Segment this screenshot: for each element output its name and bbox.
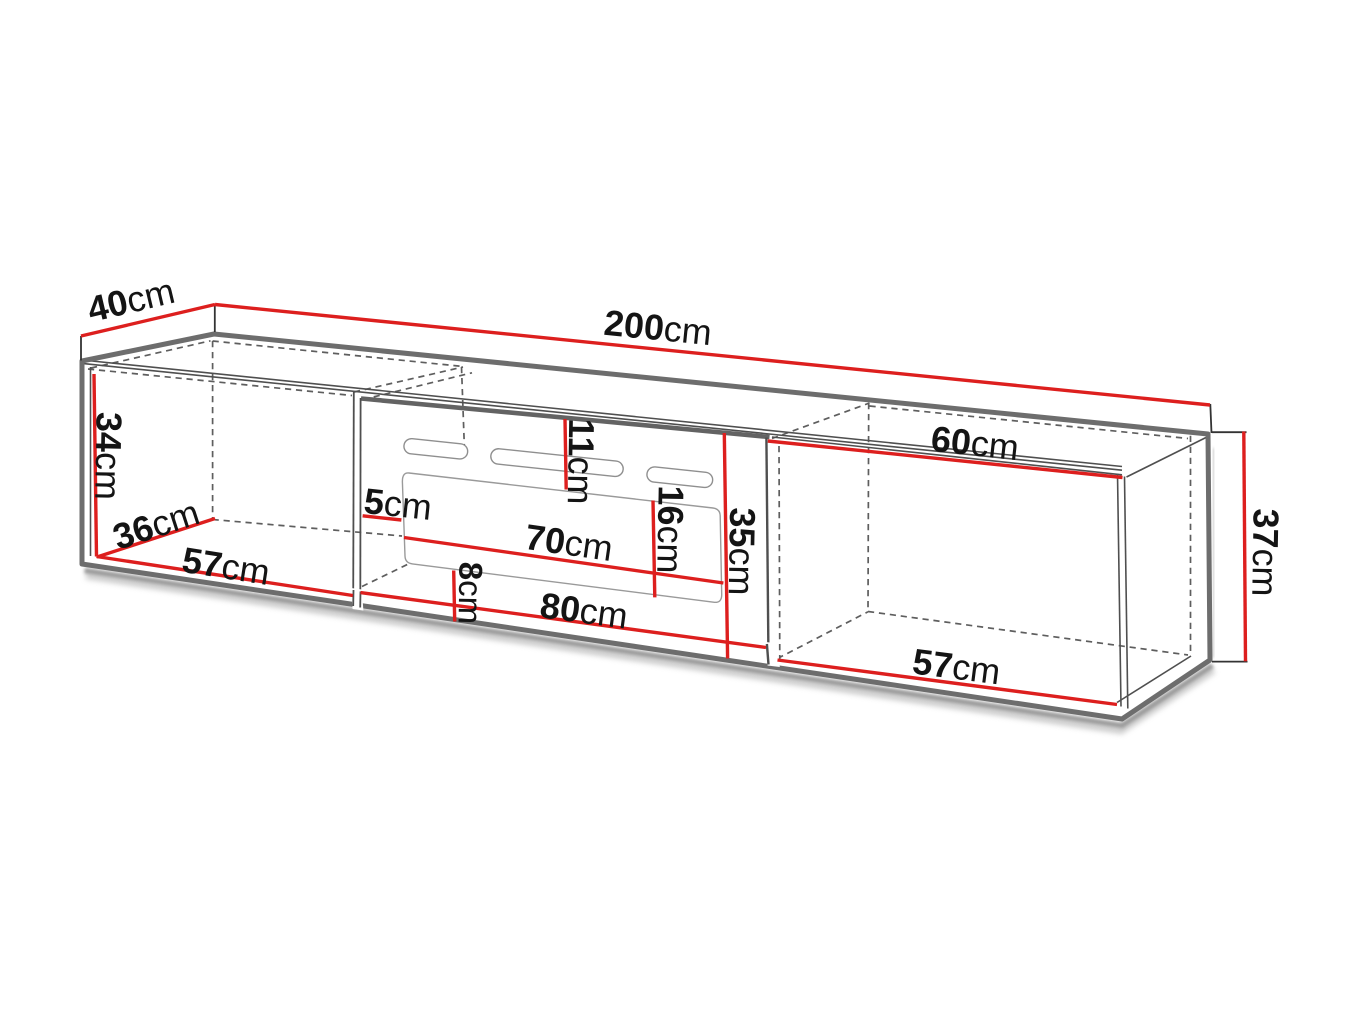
- svg-text:34cm: 34cm: [87, 412, 130, 501]
- svg-text:5cm: 5cm: [362, 480, 434, 528]
- svg-text:16cm: 16cm: [649, 485, 692, 574]
- svg-text:35cm: 35cm: [721, 507, 764, 596]
- svg-text:37cm: 37cm: [1244, 508, 1287, 597]
- svg-text:11cm: 11cm: [560, 418, 602, 505]
- svg-text:8cm: 8cm: [451, 561, 489, 624]
